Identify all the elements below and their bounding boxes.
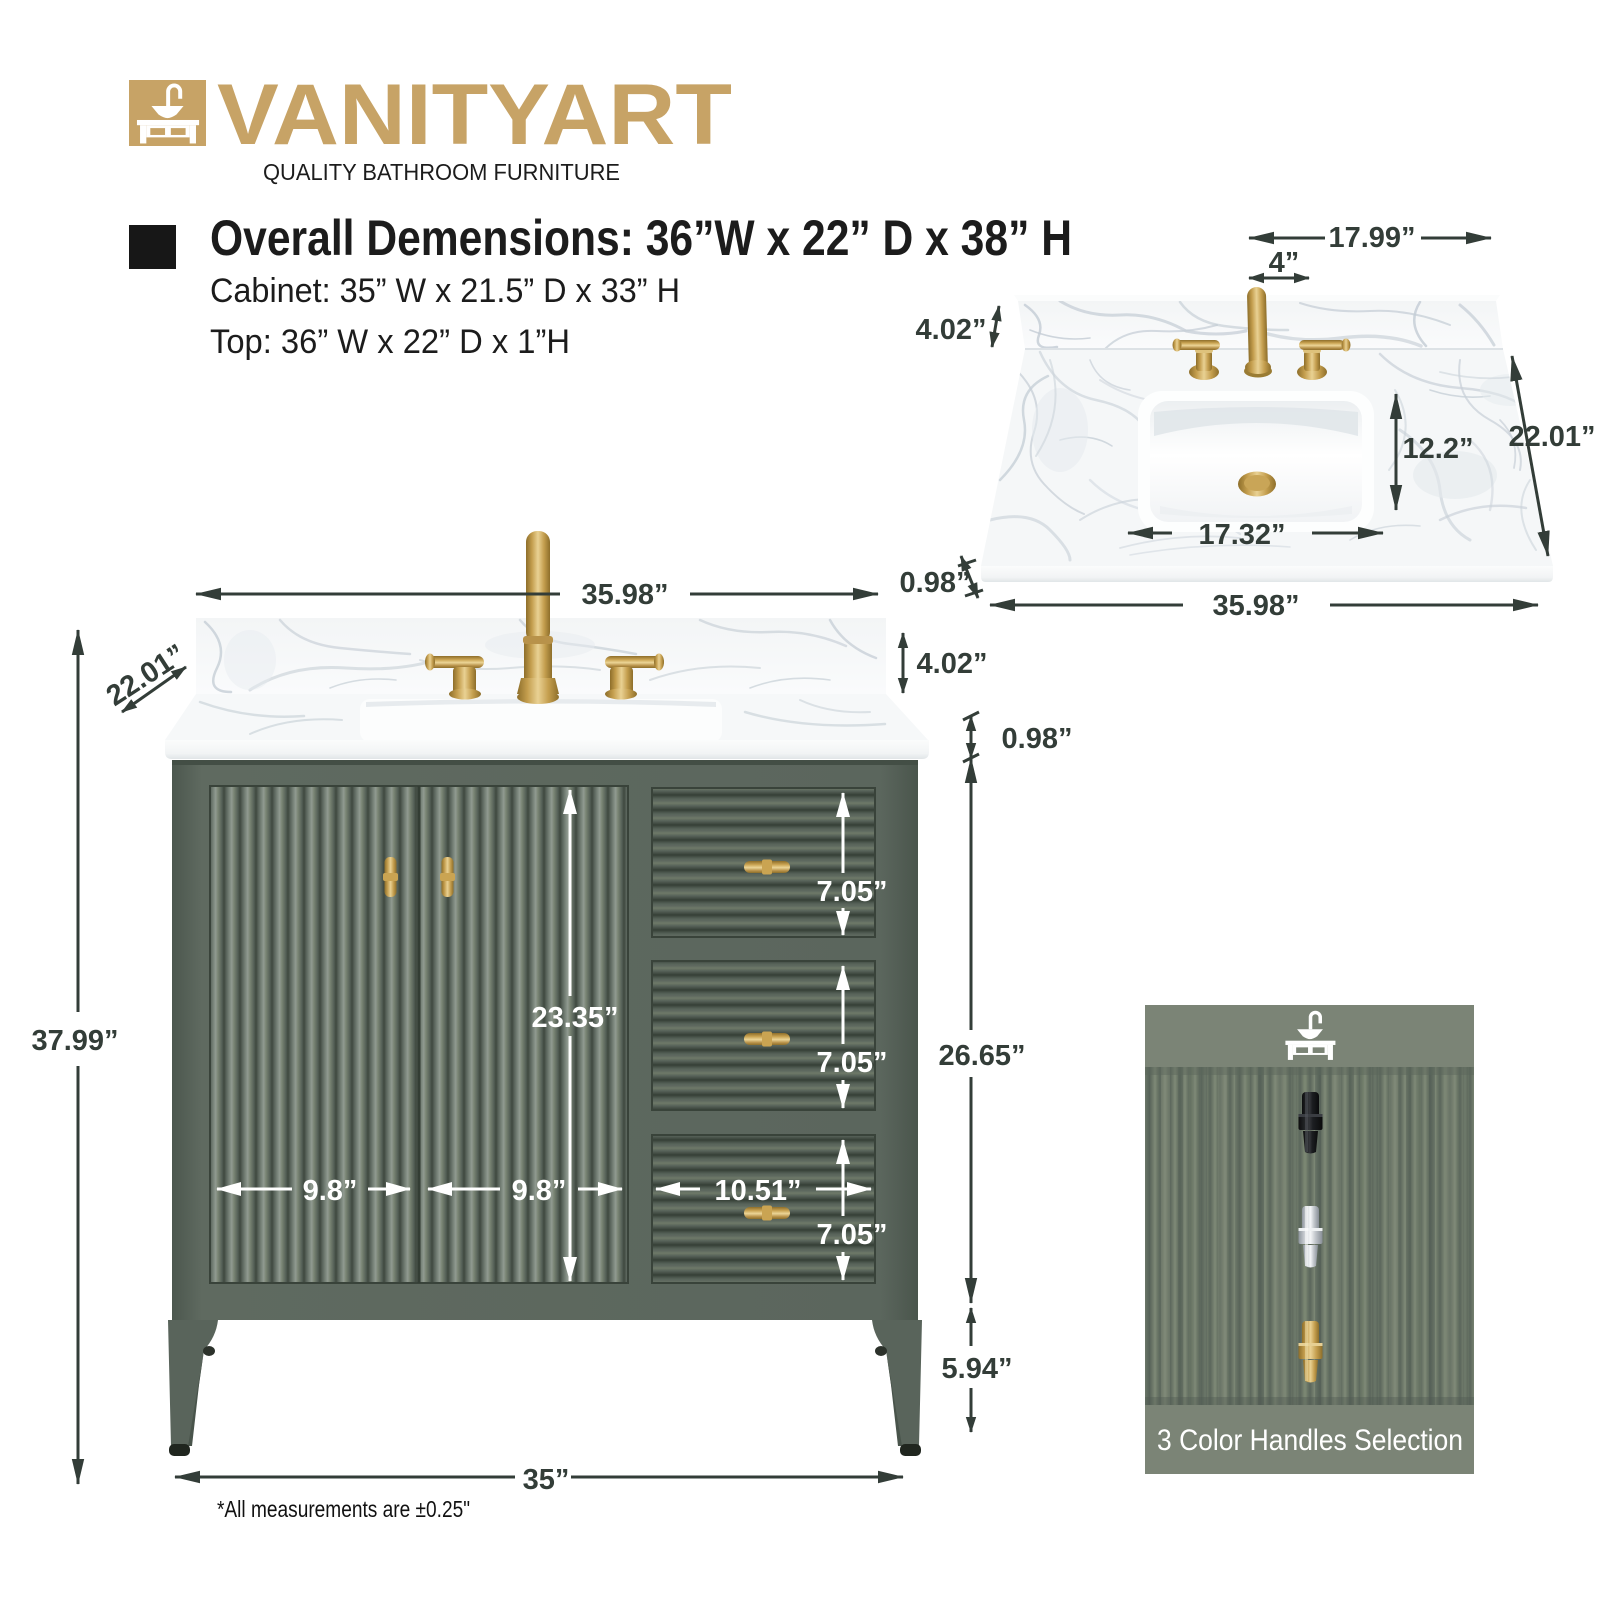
svg-text:*All measurements are ±0.25": *All measurements are ±0.25" — [217, 1496, 470, 1522]
svg-text:9.8”: 9.8” — [303, 1175, 358, 1207]
svg-text:35”: 35” — [523, 1464, 570, 1496]
svg-text:23.35”: 23.35” — [531, 1002, 618, 1034]
svg-text:17.99”: 17.99” — [1328, 222, 1415, 254]
svg-text:Overall Demensions: 36”W x 22”: Overall Demensions: 36”W x 22” D x 38” H — [210, 210, 1072, 266]
svg-text:35.98”: 35.98” — [1212, 590, 1299, 622]
svg-text:17.32”: 17.32” — [1198, 519, 1285, 551]
svg-text:7.05”: 7.05” — [817, 1219, 888, 1251]
svg-text:5.94”: 5.94” — [942, 1353, 1013, 1385]
svg-text:VANITYART: VANITYART — [217, 67, 732, 163]
svg-text:35.98”: 35.98” — [581, 579, 668, 611]
svg-text:0.98”: 0.98” — [1002, 723, 1073, 755]
svg-text:0.98”: 0.98” — [900, 567, 971, 599]
svg-text:3 Color Handles Selection: 3 Color Handles Selection — [1157, 1424, 1463, 1457]
svg-text:26.65”: 26.65” — [938, 1040, 1025, 1072]
svg-text:7.05”: 7.05” — [817, 876, 888, 908]
svg-text:Top: 36” W x 22” D x 1”H: Top: 36” W x 22” D x 1”H — [210, 323, 570, 361]
svg-text:10.51”: 10.51” — [714, 1175, 801, 1207]
svg-text:12.2”: 12.2” — [1403, 433, 1474, 465]
svg-text:7.05”: 7.05” — [817, 1047, 888, 1079]
svg-text:4.02”: 4.02” — [917, 648, 988, 680]
svg-text:QUALITY BATHROOM FURNITURE: QUALITY BATHROOM FURNITURE — [263, 159, 620, 185]
svg-text:37.99”: 37.99” — [31, 1025, 118, 1057]
svg-text:22.01”: 22.01” — [1508, 421, 1595, 453]
svg-text:4.02”: 4.02” — [916, 314, 987, 346]
svg-text:9.8”: 9.8” — [512, 1175, 567, 1207]
svg-text:Cabinet: 35” W x 21.5” D x 33”: Cabinet: 35” W x 21.5” D x 33” H — [210, 272, 680, 310]
svg-text:4”: 4” — [1269, 247, 1300, 279]
